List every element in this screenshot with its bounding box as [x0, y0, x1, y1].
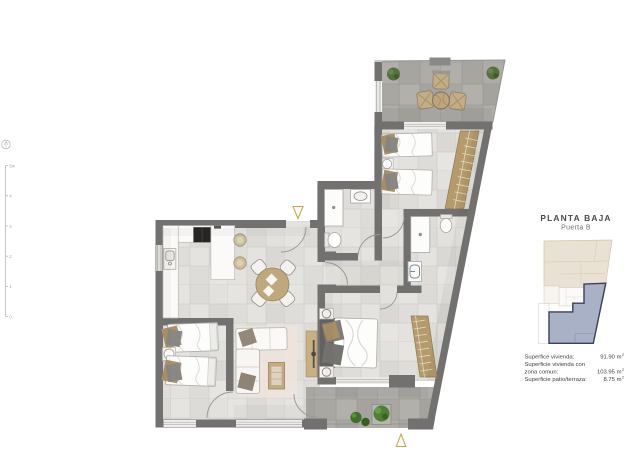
svg-text:zona comun:: zona comun: [525, 369, 559, 375]
svg-text:4: 4 [9, 194, 12, 199]
svg-text:5m: 5m [9, 163, 15, 168]
svg-text:2: 2 [9, 254, 12, 259]
svg-text:Superficie vivienda con: Superficie vivienda con [525, 362, 586, 368]
svg-text:3: 3 [9, 224, 12, 229]
svg-text:2: 2 [622, 353, 624, 357]
svg-text:91.90 m: 91.90 m [600, 355, 621, 361]
svg-text:1: 1 [9, 284, 12, 289]
svg-text:0: 0 [9, 314, 12, 319]
svg-text:103.95 m: 103.95 m [597, 369, 622, 375]
svg-text:8.75 m: 8.75 m [603, 377, 621, 383]
svg-text:Puerta B: Puerta B [561, 225, 591, 232]
svg-text:PLANTA BAJA: PLANTA BAJA [540, 213, 611, 223]
svg-text:2: 2 [622, 375, 624, 379]
svg-text:2: 2 [622, 368, 624, 372]
svg-text:Superfice vivienda:: Superfice vivienda: [525, 355, 575, 361]
svg-text:Superficie patio/terraza:: Superficie patio/terraza: [525, 377, 588, 383]
